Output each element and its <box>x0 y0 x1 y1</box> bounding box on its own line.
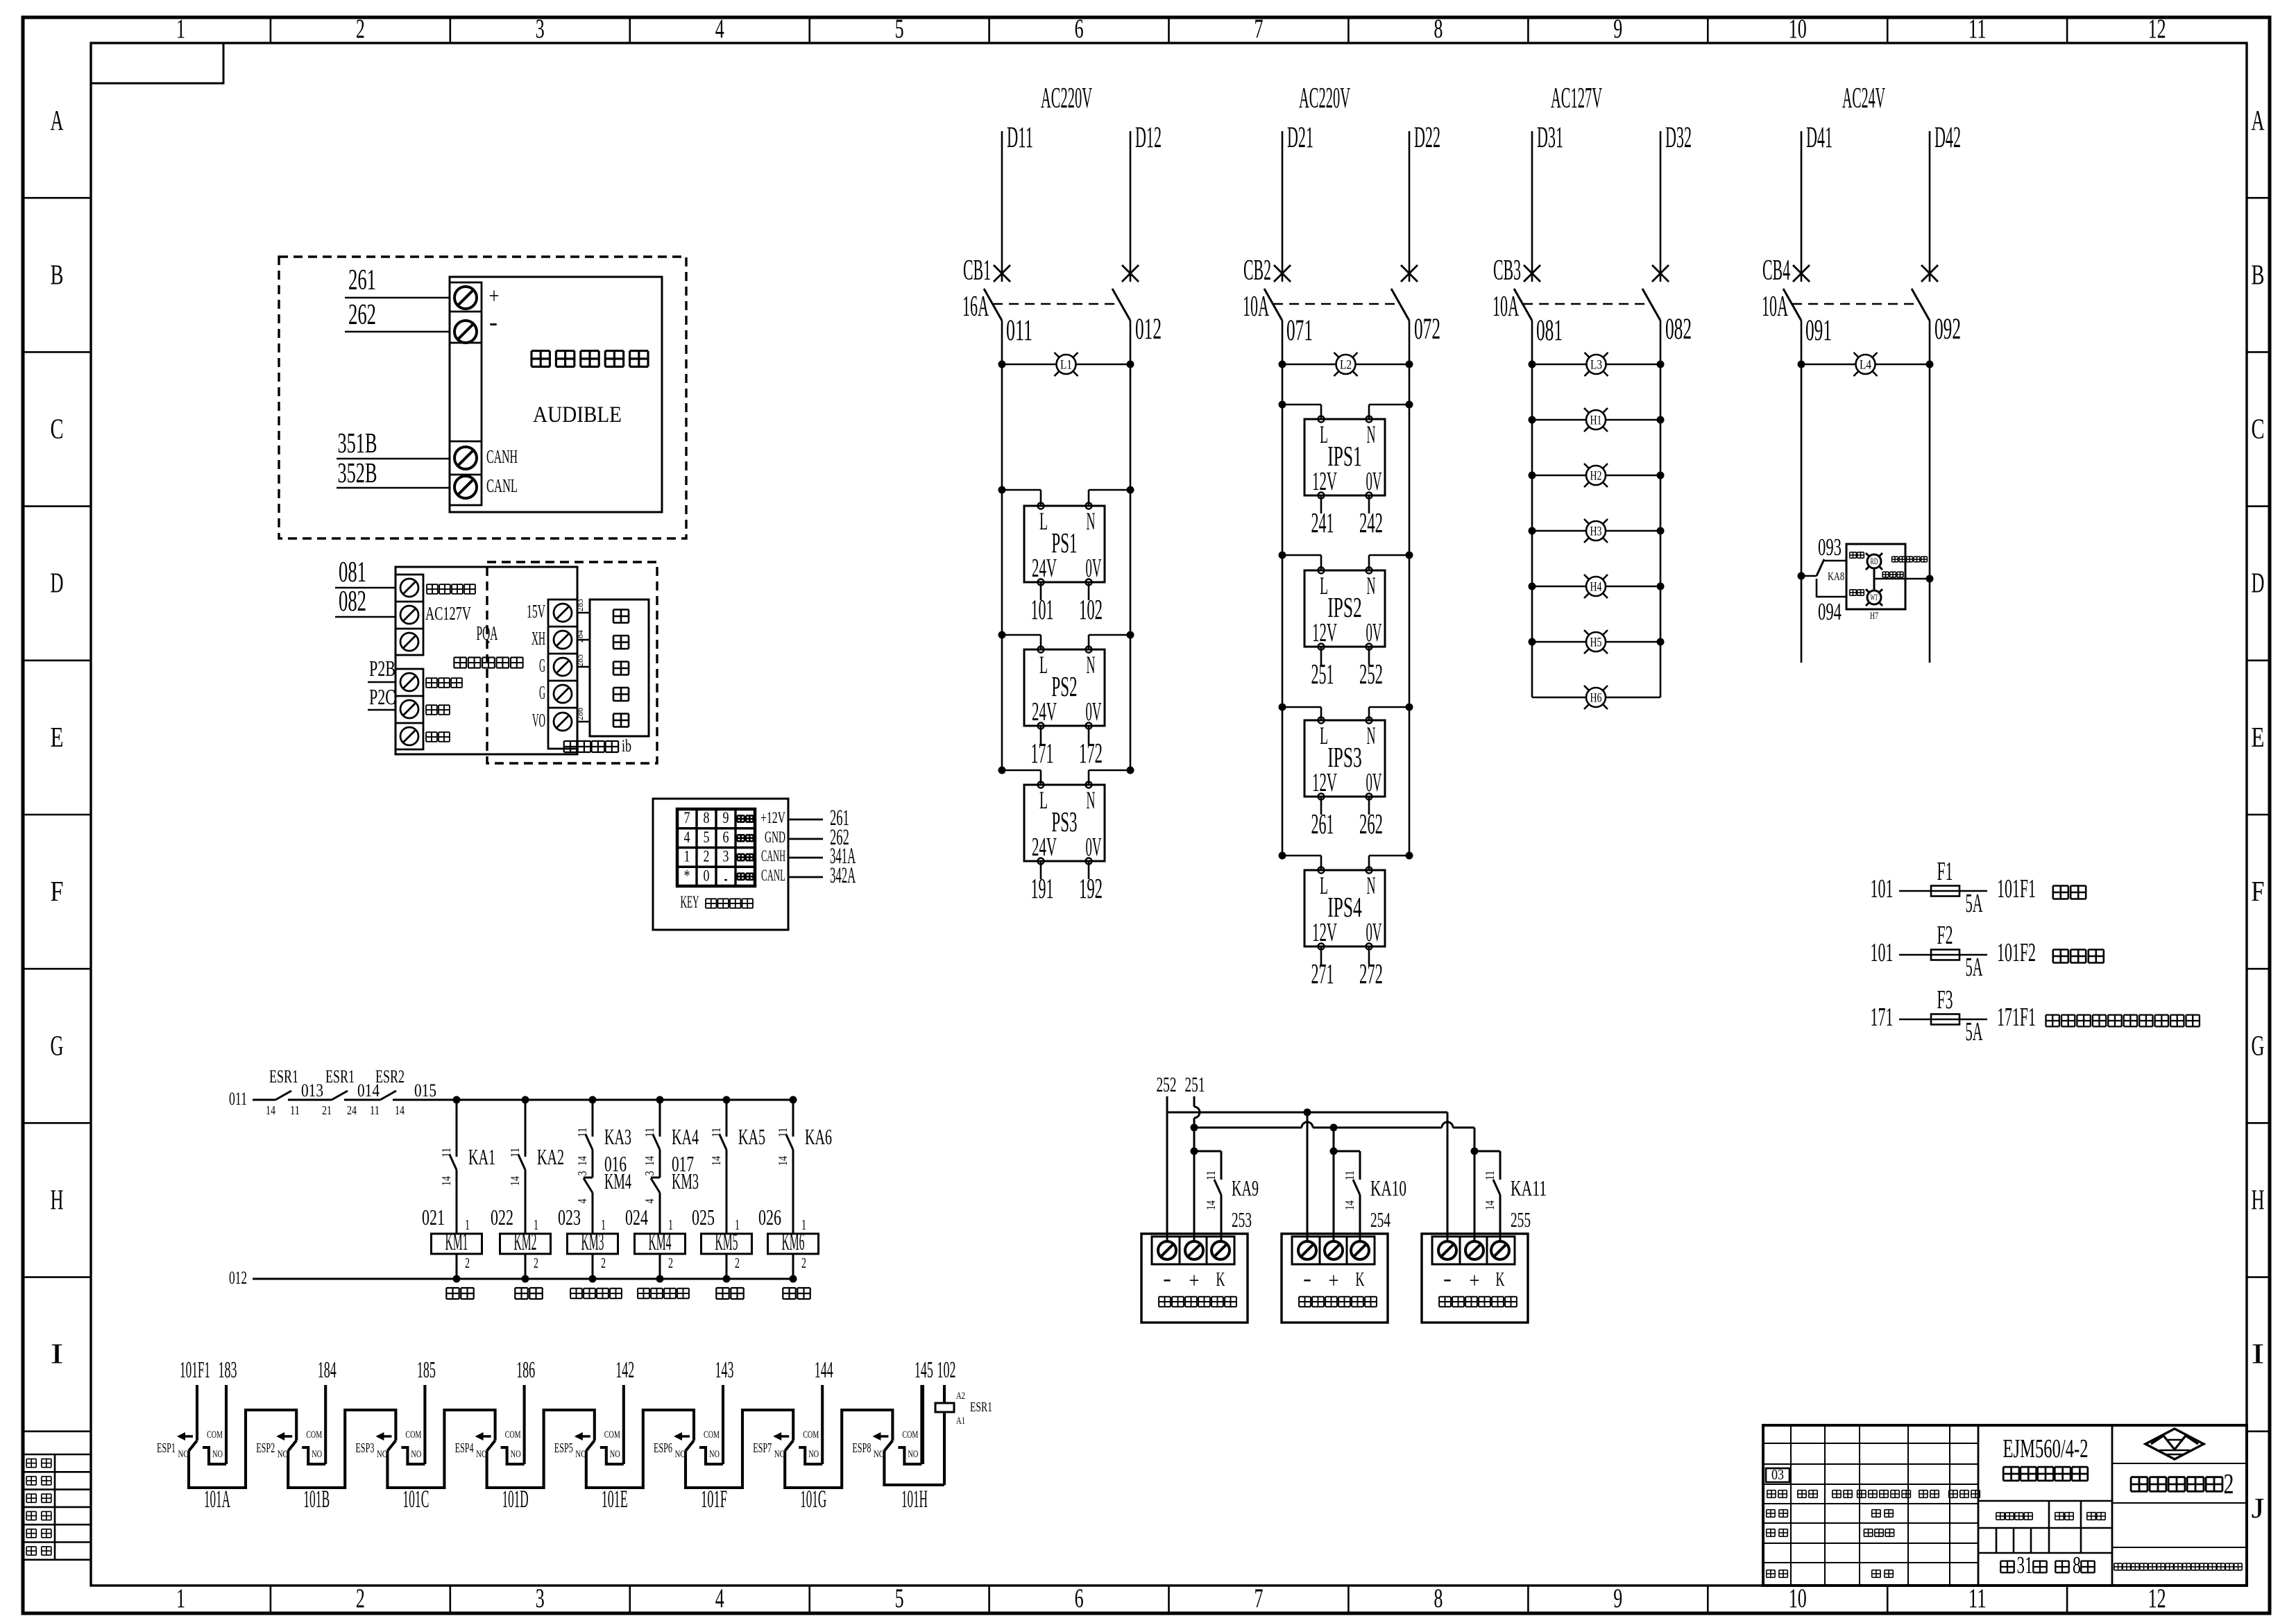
svg-text:8: 8 <box>704 809 710 826</box>
svg-text:2: 2 <box>601 1255 606 1271</box>
svg-text:03: 03 <box>1771 1466 1784 1483</box>
svg-text:025: 025 <box>692 1205 715 1230</box>
svg-text:KA9: KA9 <box>1232 1176 1259 1200</box>
svg-text:AC24V: AC24V <box>1842 82 1885 114</box>
svg-text:3: 3 <box>723 848 729 865</box>
svg-text:KM4: KM4 <box>604 1169 631 1193</box>
svg-text:ESP4: ESP4 <box>455 1441 474 1456</box>
svg-text:0V: 0V <box>1366 918 1382 947</box>
svg-text:3: 3 <box>536 1583 545 1613</box>
svg-text:C: C <box>2252 414 2265 445</box>
svg-text:NO: NO <box>610 1449 620 1460</box>
svg-text:14: 14 <box>709 1156 723 1166</box>
svg-text:CANL: CANL <box>761 867 785 884</box>
svg-text:186: 186 <box>516 1357 535 1383</box>
svg-text:14: 14 <box>1343 1200 1357 1210</box>
svg-text:192: 192 <box>1079 873 1103 904</box>
svg-text:1: 1 <box>668 1216 673 1233</box>
svg-text:026: 026 <box>758 1205 781 1230</box>
svg-text:11: 11 <box>370 1103 380 1117</box>
svg-text:H6: H6 <box>1590 690 1602 705</box>
svg-text:VO: VO <box>532 710 545 731</box>
svg-text:101A: 101A <box>204 1485 230 1513</box>
svg-text:8: 8 <box>1434 1583 1443 1613</box>
svg-text:1: 1 <box>601 1216 606 1233</box>
svg-text:10A: 10A <box>1762 290 1788 323</box>
svg-text:E: E <box>51 722 64 753</box>
svg-text:093: 093 <box>1818 534 1842 561</box>
svg-text:A: A <box>51 105 64 136</box>
svg-text:0V: 0V <box>1086 833 1102 862</box>
svg-text:K: K <box>1496 1268 1505 1291</box>
svg-text:11: 11 <box>439 1148 453 1157</box>
svg-text:1: 1 <box>176 1583 185 1613</box>
svg-text:10: 10 <box>1789 13 1807 44</box>
svg-text:L2: L2 <box>1340 357 1352 372</box>
svg-text:102: 102 <box>1079 594 1103 625</box>
svg-text:KA4: KA4 <box>672 1125 699 1149</box>
svg-text:KA11: KA11 <box>1511 1176 1547 1200</box>
svg-text:-: - <box>1163 1266 1171 1291</box>
svg-text:ib: ib <box>622 736 631 756</box>
svg-text:012: 012 <box>1135 312 1162 346</box>
svg-text:101F1: 101F1 <box>180 1357 210 1383</box>
svg-text:NO: NO <box>212 1449 223 1460</box>
svg-text:12V: 12V <box>1312 618 1337 647</box>
svg-text:ESP7: ESP7 <box>753 1441 772 1456</box>
svg-text:286: 286 <box>575 708 586 720</box>
svg-text:0V: 0V <box>1366 618 1382 647</box>
svg-text:144: 144 <box>815 1357 833 1383</box>
svg-text:G: G <box>539 682 545 703</box>
svg-text:11: 11 <box>1483 1171 1497 1180</box>
svg-text:24: 24 <box>347 1103 357 1117</box>
svg-text:AC127V: AC127V <box>425 603 471 624</box>
svg-text:PQA: PQA <box>477 622 498 645</box>
svg-text:NC: NC <box>178 1449 189 1460</box>
svg-text:L: L <box>1320 872 1328 899</box>
svg-text:-: - <box>1303 1266 1311 1291</box>
svg-text:6: 6 <box>1075 1583 1084 1613</box>
svg-text:24V: 24V <box>1032 833 1057 862</box>
svg-text:L: L <box>1320 572 1328 600</box>
svg-text:183: 183 <box>219 1357 237 1383</box>
svg-text:261: 261 <box>1311 808 1334 840</box>
svg-text:023: 023 <box>558 1205 581 1230</box>
svg-text:11: 11 <box>709 1128 723 1137</box>
svg-text:11: 11 <box>290 1103 300 1117</box>
svg-text:101F: 101F <box>701 1485 727 1513</box>
svg-text:11: 11 <box>1343 1171 1357 1180</box>
svg-text:11: 11 <box>575 1128 589 1137</box>
svg-text:L: L <box>1320 722 1328 749</box>
svg-text:31: 31 <box>2017 1552 2033 1579</box>
svg-text:ESP1: ESP1 <box>157 1441 176 1456</box>
svg-text:092: 092 <box>1934 312 1961 346</box>
svg-text:D: D <box>51 568 64 599</box>
svg-text:071: 071 <box>1286 314 1313 347</box>
svg-text:081: 081 <box>339 556 366 588</box>
svg-text:241: 241 <box>1311 507 1334 538</box>
svg-text:ESR1: ESR1 <box>970 1400 992 1415</box>
svg-text:072: 072 <box>1414 312 1440 346</box>
svg-text:101D: 101D <box>502 1485 529 1513</box>
svg-text:11: 11 <box>1968 1583 1987 1613</box>
svg-text:142: 142 <box>615 1357 634 1383</box>
svg-text:A: A <box>2252 105 2265 136</box>
svg-text:C: C <box>51 414 64 445</box>
svg-text:012: 012 <box>229 1267 247 1288</box>
svg-text:A2: A2 <box>956 1391 965 1402</box>
svg-text:G: G <box>51 1030 64 1061</box>
svg-text:12V: 12V <box>1312 768 1337 797</box>
svg-text:0V: 0V <box>1366 768 1382 797</box>
svg-text:NC: NC <box>774 1449 785 1460</box>
svg-text:101: 101 <box>1871 938 1894 967</box>
svg-text:1: 1 <box>684 848 690 865</box>
svg-text:L: L <box>1039 651 1048 679</box>
svg-text:ESP6: ESP6 <box>654 1441 672 1456</box>
svg-text:0V: 0V <box>1086 697 1102 726</box>
svg-text:ESP5: ESP5 <box>554 1441 573 1456</box>
svg-text:D: D <box>2252 568 2265 599</box>
svg-text:3: 3 <box>643 1171 656 1176</box>
svg-text:COM: COM <box>604 1429 620 1441</box>
svg-text:101G: 101G <box>800 1485 826 1513</box>
svg-text:G: G <box>539 655 545 676</box>
svg-text:NC: NC <box>874 1449 884 1460</box>
svg-text:KA5: KA5 <box>738 1125 765 1149</box>
svg-text:094: 094 <box>1818 598 1842 625</box>
svg-text:3: 3 <box>575 1171 589 1176</box>
svg-text:KA8: KA8 <box>1828 570 1844 583</box>
svg-text:N: N <box>1367 722 1376 749</box>
svg-text:255: 255 <box>1511 1208 1531 1232</box>
svg-text:H1: H1 <box>1590 413 1602 427</box>
svg-text:7: 7 <box>684 809 690 826</box>
svg-text:101H: 101H <box>901 1485 928 1513</box>
svg-text:ESR1: ESR1 <box>269 1066 298 1087</box>
svg-text:24V: 24V <box>1032 554 1057 583</box>
svg-text:9: 9 <box>1613 13 1622 44</box>
svg-text:COM: COM <box>704 1429 720 1441</box>
svg-text:082: 082 <box>339 585 366 618</box>
svg-text:D31: D31 <box>1537 121 1563 154</box>
svg-text:+: + <box>1470 1268 1480 1293</box>
svg-text:H2: H2 <box>1590 468 1602 483</box>
svg-text:-: - <box>489 307 498 337</box>
svg-text:N: N <box>1087 507 1096 535</box>
svg-text:KA3: KA3 <box>604 1125 631 1149</box>
svg-text:+: + <box>1329 1268 1339 1293</box>
svg-text:AC127V: AC127V <box>1551 82 1602 114</box>
svg-text:102: 102 <box>937 1357 956 1383</box>
svg-text:14: 14 <box>776 1156 790 1166</box>
svg-text:101B: 101B <box>303 1485 330 1513</box>
svg-text:081: 081 <box>1536 314 1563 347</box>
svg-text:0V: 0V <box>1086 554 1102 583</box>
svg-text:COM: COM <box>902 1429 918 1441</box>
svg-text:0: 0 <box>704 867 710 884</box>
svg-text:D32: D32 <box>1665 121 1692 154</box>
svg-text:352B: 352B <box>338 457 377 488</box>
svg-text:K: K <box>1216 1268 1225 1291</box>
svg-text:N: N <box>1367 420 1376 448</box>
svg-text:ESP8: ESP8 <box>852 1441 871 1456</box>
svg-text:171F1: 171F1 <box>1997 1003 2036 1032</box>
svg-text:2: 2 <box>704 848 710 865</box>
svg-text:ESP2: ESP2 <box>256 1441 275 1456</box>
svg-text:11: 11 <box>1968 13 1987 44</box>
svg-text:022: 022 <box>491 1205 513 1230</box>
svg-text:271: 271 <box>1311 958 1334 989</box>
svg-text:4: 4 <box>684 829 690 846</box>
svg-text:P2B: P2B <box>369 656 396 681</box>
svg-text:145: 145 <box>915 1357 933 1383</box>
svg-text:12: 12 <box>2148 1583 2166 1613</box>
svg-text:-: - <box>1443 1266 1452 1291</box>
svg-text:NO: NO <box>411 1449 421 1460</box>
svg-text:261: 261 <box>348 264 376 296</box>
svg-text:284: 284 <box>575 630 586 643</box>
svg-text:4: 4 <box>715 1583 724 1613</box>
svg-text:AUDIBLE: AUDIBLE <box>533 402 622 427</box>
svg-text:252: 252 <box>1157 1073 1177 1096</box>
svg-text:14: 14 <box>575 1156 589 1166</box>
svg-text:L: L <box>1320 420 1328 448</box>
svg-text:H: H <box>51 1184 64 1216</box>
svg-text:101F1: 101F1 <box>1997 874 2036 903</box>
svg-text:14: 14 <box>395 1103 405 1117</box>
svg-text:15V: 15V <box>527 601 545 622</box>
svg-text:B: B <box>2252 259 2265 290</box>
svg-text:CB2: CB2 <box>1243 254 1271 287</box>
svg-text:2: 2 <box>465 1255 470 1271</box>
svg-text:H4: H4 <box>1590 579 1602 594</box>
svg-text:262: 262 <box>1359 808 1383 840</box>
svg-text:A1: A1 <box>956 1416 965 1427</box>
svg-text:253: 253 <box>1232 1208 1252 1232</box>
svg-text:14: 14 <box>1204 1200 1218 1210</box>
svg-text:252: 252 <box>1359 658 1383 690</box>
svg-text:9: 9 <box>723 809 729 826</box>
svg-text:COM: COM <box>207 1429 223 1441</box>
svg-text:1: 1 <box>465 1216 470 1233</box>
svg-text:L1: L1 <box>1060 357 1072 372</box>
svg-text:H3: H3 <box>1590 524 1602 538</box>
svg-text:NC: NC <box>575 1449 586 1460</box>
svg-text:NO: NO <box>709 1449 720 1460</box>
svg-text:11: 11 <box>508 1148 522 1157</box>
svg-text:184: 184 <box>318 1357 337 1383</box>
svg-text:14: 14 <box>508 1176 522 1186</box>
svg-text:L3: L3 <box>1590 357 1602 372</box>
svg-text:10A: 10A <box>1493 290 1519 323</box>
svg-text:5A: 5A <box>1966 1017 1983 1046</box>
svg-text:J: J <box>2252 1493 2265 1524</box>
svg-text:N: N <box>1087 786 1096 814</box>
svg-text:P2C: P2C <box>369 685 396 709</box>
svg-text:7: 7 <box>1255 13 1264 44</box>
svg-text:CB1: CB1 <box>963 254 991 287</box>
svg-text:COM: COM <box>405 1429 421 1441</box>
svg-text:2: 2 <box>735 1255 740 1271</box>
svg-text:1: 1 <box>176 13 185 44</box>
svg-text:NC: NC <box>377 1449 387 1460</box>
svg-text:NC: NC <box>675 1449 686 1460</box>
svg-text:2: 2 <box>356 1583 365 1613</box>
svg-text:.: . <box>723 867 729 884</box>
svg-text:G: G <box>2252 1030 2265 1061</box>
svg-text:12: 12 <box>2148 13 2166 44</box>
svg-text:101F2: 101F2 <box>1997 938 2036 967</box>
svg-text:2: 2 <box>801 1255 806 1271</box>
svg-text:I: I <box>51 1339 64 1370</box>
svg-text:N: N <box>1367 572 1376 600</box>
svg-text:24V: 24V <box>1032 697 1057 726</box>
svg-text:191: 191 <box>1031 873 1054 904</box>
svg-text:101: 101 <box>1871 874 1894 903</box>
svg-text:3: 3 <box>536 13 545 44</box>
svg-text:E: E <box>2252 722 2265 753</box>
svg-text:1: 1 <box>534 1216 538 1233</box>
svg-text:XH: XH <box>532 628 545 649</box>
svg-text:ESR1: ESR1 <box>325 1066 355 1087</box>
svg-text:H: H <box>2252 1184 2265 1216</box>
svg-text:K: K <box>1356 1268 1365 1291</box>
svg-text:14: 14 <box>643 1156 656 1166</box>
svg-text:171: 171 <box>1871 1003 1894 1032</box>
svg-text:11: 11 <box>1204 1171 1218 1180</box>
svg-text:COM: COM <box>306 1429 322 1441</box>
svg-text:16A: 16A <box>962 290 989 323</box>
svg-text:283: 283 <box>575 599 586 611</box>
svg-text:NO: NO <box>808 1449 819 1460</box>
svg-text:5A: 5A <box>1966 889 1983 918</box>
svg-text:024: 024 <box>625 1205 648 1230</box>
svg-text:10A: 10A <box>1243 290 1269 323</box>
svg-text:D42: D42 <box>1934 121 1961 154</box>
svg-text:9: 9 <box>1613 1583 1622 1613</box>
svg-text:ESR2: ESR2 <box>375 1066 405 1087</box>
svg-text:NO: NO <box>511 1449 521 1460</box>
svg-text:251: 251 <box>1185 1073 1205 1096</box>
svg-text:7: 7 <box>1255 1583 1264 1613</box>
svg-text:285: 285 <box>575 654 586 667</box>
svg-text:D11: D11 <box>1007 121 1033 154</box>
svg-text:1: 1 <box>735 1216 740 1233</box>
svg-text:B: B <box>51 259 64 290</box>
svg-text:8: 8 <box>2073 1552 2081 1579</box>
svg-text:KA6: KA6 <box>805 1125 832 1149</box>
svg-text:2: 2 <box>534 1255 538 1271</box>
svg-text:14: 14 <box>266 1103 275 1117</box>
svg-text:021: 021 <box>422 1205 445 1230</box>
svg-text:D21: D21 <box>1287 121 1313 154</box>
svg-text:L: L <box>1039 507 1048 535</box>
svg-text:AC220V: AC220V <box>1041 82 1092 114</box>
svg-text:CB4: CB4 <box>1762 254 1790 287</box>
svg-text:14: 14 <box>1483 1200 1497 1210</box>
svg-text:AC220V: AC220V <box>1299 82 1350 114</box>
svg-text:5A: 5A <box>1966 953 1983 982</box>
svg-text:4: 4 <box>575 1199 589 1204</box>
svg-text:21: 21 <box>322 1103 332 1117</box>
svg-text:F3: F3 <box>1937 985 1953 1014</box>
svg-text:2: 2 <box>356 13 365 44</box>
svg-text:013: 013 <box>301 1080 323 1101</box>
svg-text:N: N <box>1367 872 1376 899</box>
svg-text:10: 10 <box>1789 1583 1807 1613</box>
svg-text:011: 011 <box>229 1088 247 1109</box>
svg-text:14: 14 <box>439 1176 453 1186</box>
svg-text:2: 2 <box>668 1255 673 1271</box>
svg-text:5: 5 <box>895 1583 904 1613</box>
svg-text:6: 6 <box>723 829 729 846</box>
svg-text:F1: F1 <box>1937 857 1953 886</box>
svg-text:H7: H7 <box>1870 611 1878 622</box>
svg-text:101C: 101C <box>402 1485 429 1513</box>
svg-text:+: + <box>1189 1268 1200 1293</box>
svg-text:5: 5 <box>895 13 904 44</box>
svg-text:KM3: KM3 <box>672 1169 699 1193</box>
svg-text:12V: 12V <box>1312 918 1337 947</box>
svg-text:082: 082 <box>1665 312 1692 346</box>
svg-text:185: 185 <box>417 1357 436 1383</box>
svg-text:101: 101 <box>1031 594 1054 625</box>
svg-text:2: 2 <box>2224 1468 2234 1499</box>
svg-text:H5: H5 <box>1590 635 1602 649</box>
svg-text:EJM560/4-2: EJM560/4-2 <box>2003 1434 2089 1463</box>
svg-text:8: 8 <box>1434 13 1443 44</box>
svg-text:0V: 0V <box>1366 467 1382 496</box>
svg-text:COM: COM <box>803 1429 819 1441</box>
svg-text:N: N <box>1087 651 1096 679</box>
svg-text:242: 242 <box>1359 507 1383 538</box>
svg-text:RD: RD <box>1871 556 1878 566</box>
svg-text:11: 11 <box>776 1128 790 1137</box>
svg-text:KA2: KA2 <box>537 1145 564 1169</box>
svg-text:NC: NC <box>476 1449 486 1460</box>
svg-text:262: 262 <box>348 298 376 331</box>
svg-text:KA1: KA1 <box>468 1145 495 1169</box>
svg-text:WT: WT <box>1871 593 1878 602</box>
svg-text:D41: D41 <box>1806 121 1832 154</box>
svg-text:GND: GND <box>765 829 785 846</box>
svg-text:CANH: CANH <box>761 847 785 865</box>
svg-text:KA10: KA10 <box>1370 1176 1406 1200</box>
svg-text:D22: D22 <box>1414 121 1440 154</box>
svg-text:+12V: +12V <box>760 809 785 826</box>
svg-text:ESP3: ESP3 <box>355 1441 374 1456</box>
svg-text:L4: L4 <box>1860 357 1871 372</box>
svg-text:4: 4 <box>715 13 724 44</box>
svg-text:12V: 12V <box>1312 467 1337 496</box>
svg-text:172: 172 <box>1079 738 1103 769</box>
svg-text:CANL: CANL <box>486 475 518 496</box>
svg-text:NO: NO <box>312 1449 322 1460</box>
svg-text:CANH: CANH <box>486 446 518 467</box>
svg-text:F: F <box>2252 876 2265 907</box>
svg-text:251: 251 <box>1311 658 1334 690</box>
svg-text:L: L <box>1039 786 1048 814</box>
svg-text:091: 091 <box>1805 314 1832 347</box>
svg-text:I: I <box>2252 1339 2265 1370</box>
svg-text:5: 5 <box>704 829 710 846</box>
svg-text:1: 1 <box>801 1216 806 1233</box>
svg-text:D12: D12 <box>1135 121 1162 154</box>
svg-text:6: 6 <box>1075 13 1084 44</box>
